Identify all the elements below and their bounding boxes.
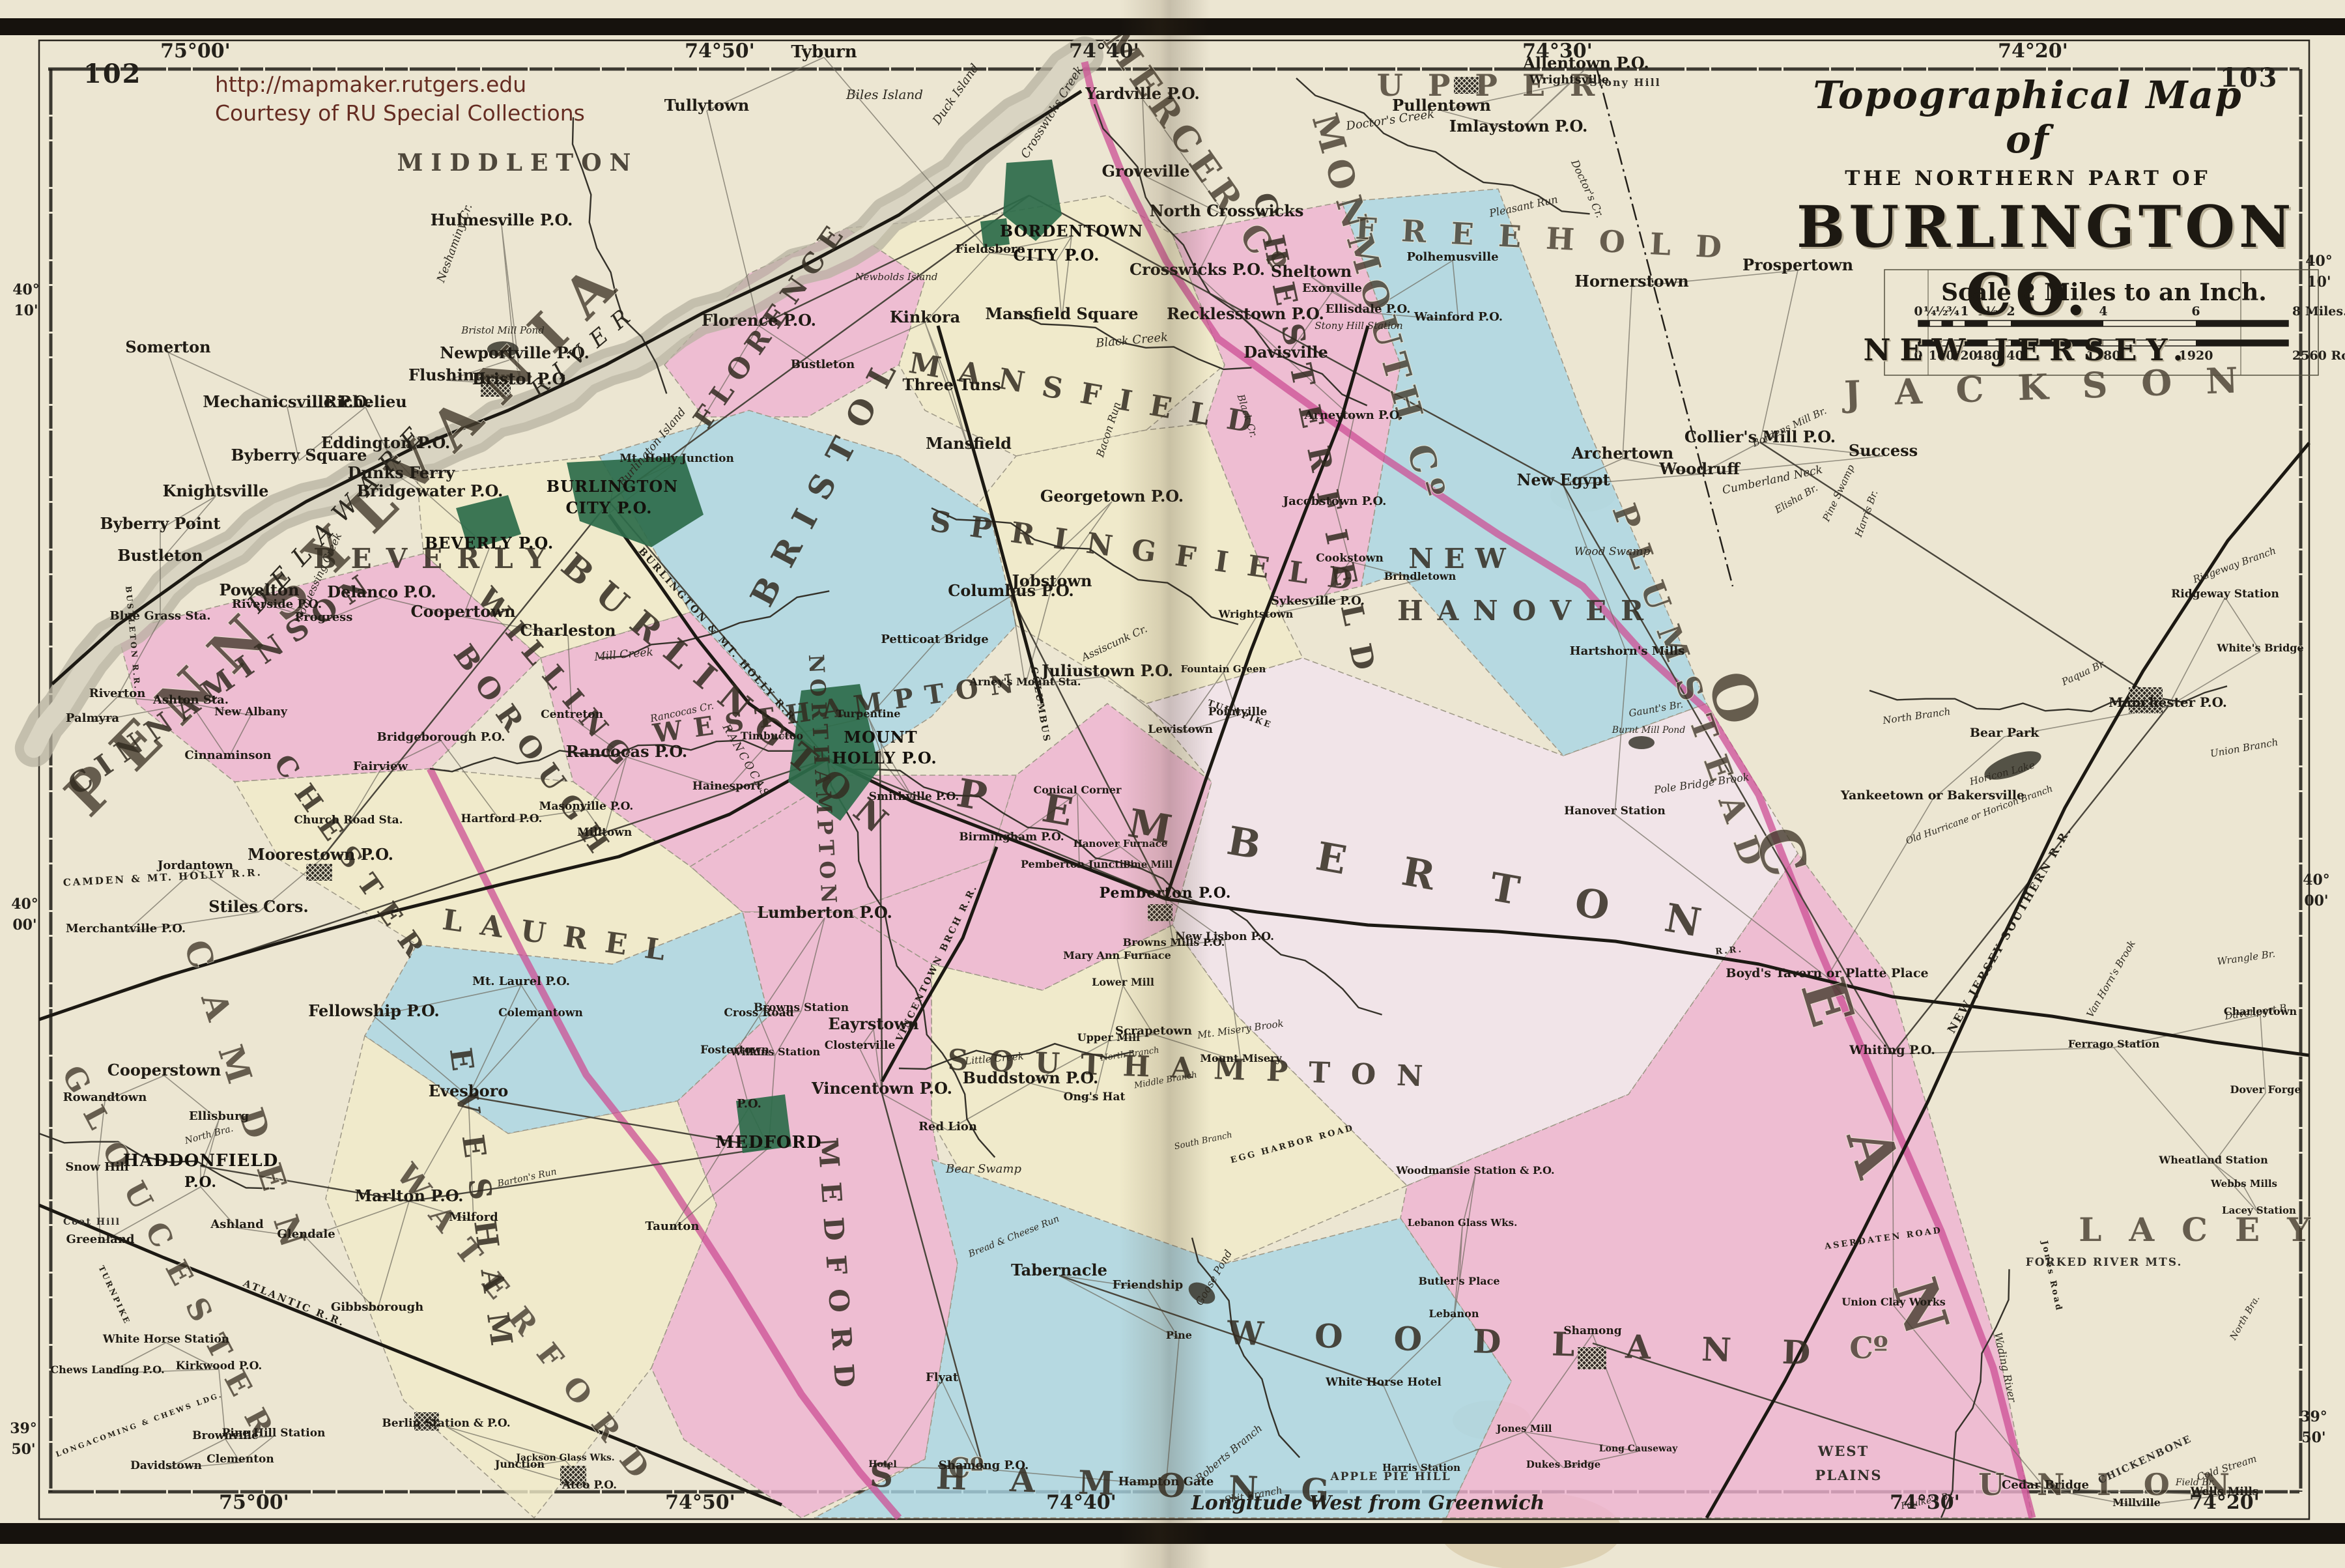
scale-label: Scale 2 Miles to an Inch. xyxy=(1915,279,2293,306)
place-label: Long Causeway xyxy=(1599,1444,1678,1454)
watermark: http://mapmaker.rutgers.edu Courtesy of … xyxy=(215,70,585,128)
place-label: Rancocas P.O. xyxy=(566,742,687,761)
place-label: Shamong xyxy=(1563,1324,1621,1337)
place-label: Ong's Hat xyxy=(1064,1090,1126,1104)
longitude-label-top: 74°30' xyxy=(1522,40,1593,63)
place-label: Stony Hill Station xyxy=(1315,320,1402,332)
place-label: Lumberton P.O. xyxy=(757,903,892,922)
place-label: BURLINGTON xyxy=(547,477,678,496)
place-label: Sykesville P.O. xyxy=(1271,594,1365,608)
place-label: Florence P.O. xyxy=(702,311,816,330)
place-label: Shamong P.O. xyxy=(939,1459,1029,1472)
longitude-label-top: 74°50' xyxy=(685,40,755,63)
place-label: Manchester P.O. xyxy=(2109,694,2227,710)
place-label: Conical Corner xyxy=(1034,784,1122,796)
place-label: Newbolds Island xyxy=(855,271,938,283)
place-label: Vincentown P.O. xyxy=(811,1079,952,1098)
place-label: Chews Landing P.O. xyxy=(50,1363,164,1376)
place-label: Milford xyxy=(449,1210,498,1224)
place-label: Taunton xyxy=(646,1219,700,1233)
place-label: Cinnaminson xyxy=(184,748,271,762)
place-label: Exonville xyxy=(1302,281,1362,295)
place-label: Hartford P.O. xyxy=(461,812,543,825)
latitude-label: 00' xyxy=(12,917,36,934)
place-label: Union Clay Works xyxy=(1841,1296,1945,1308)
place-label: Stiles Cors. xyxy=(208,897,308,916)
place-label: Kinkora xyxy=(890,307,960,326)
place-label: HADDONFIELD xyxy=(123,1151,279,1171)
latitude-label: 40° xyxy=(11,896,38,913)
place-label: Biles Island xyxy=(846,87,923,102)
watermark-line-1: http://mapmaker.rutgers.edu xyxy=(215,70,585,99)
title-block: Topographical Map of THE NORTHERN PART O… xyxy=(1797,73,2259,367)
map-sheet: PENNSYLVANIAMIDDLETONBRISTOLMERCER CºMON… xyxy=(0,0,2345,1568)
place-label: Boyd's Tavern or Platte Place xyxy=(1726,966,1928,980)
place-label: Bridgewater P.O. xyxy=(357,481,504,500)
place-label: P.O. xyxy=(184,1174,217,1191)
place-label: Church Road Sta. xyxy=(294,814,403,827)
latitude-label: 40° xyxy=(12,281,40,298)
place-label: Greenland xyxy=(66,1233,134,1246)
place-label: HANOVER xyxy=(1397,595,1658,627)
place-label: White Horse Hotel xyxy=(1325,1376,1442,1389)
place-label: Success xyxy=(1849,441,1918,460)
place-label: Cookstown xyxy=(1316,552,1384,565)
place-label: Ferrago Station xyxy=(2068,1038,2160,1050)
place-label: White Horse Station xyxy=(102,1333,229,1346)
place-label: Powelton xyxy=(220,580,300,599)
place-label: Bristol Mill Pond xyxy=(461,324,545,336)
place-label: Moorestown P.O. xyxy=(248,845,393,864)
place-label: Lebanon xyxy=(1429,1307,1479,1320)
place-label: Evesboro xyxy=(429,1081,508,1100)
place-label: White's Bridge xyxy=(2216,642,2303,654)
place-label: Eddington P.O. xyxy=(321,433,450,452)
place-label: Butler's Place xyxy=(1418,1275,1499,1287)
latitude-label: 39° xyxy=(2300,1408,2327,1425)
place-label: Bustleton xyxy=(117,546,203,565)
place-label: CITY P.O. xyxy=(566,498,653,517)
place-label: Imlaystown P.O. xyxy=(1449,117,1588,135)
place-label: Tullytown xyxy=(664,96,750,115)
place-label: Bear Swamp xyxy=(945,1162,1021,1176)
title-line-1: Topographical Map of xyxy=(1797,73,2259,162)
place-label: Hornerstown xyxy=(1574,272,1688,291)
place-label: Davidstown xyxy=(130,1459,202,1472)
place-label: Tyburn xyxy=(791,42,857,62)
place-label: Webbs Mills xyxy=(2210,1178,2277,1190)
place-label: Ridgeway Station xyxy=(2171,588,2279,601)
place-label: Tabernacle xyxy=(1011,1261,1107,1279)
place-label: Millville xyxy=(2112,1496,2161,1509)
place-label: Mt. Laurel P.O. xyxy=(472,975,570,988)
place-label: Blue Grass Sta. xyxy=(109,609,210,623)
place-label: Arneytown P.O. xyxy=(1303,408,1402,422)
place-label: Clementon xyxy=(206,1453,274,1466)
place-label: Bear Park xyxy=(1970,726,2039,740)
longitude-label-bottom: 74°20' xyxy=(2189,1491,2260,1514)
latitude-label: 40° xyxy=(2303,872,2330,889)
place-label: Coopertown xyxy=(410,602,515,621)
page-fold-gutter xyxy=(1119,0,1210,1568)
place-label: Milltown xyxy=(577,826,632,839)
place-label: Cedar Bridge xyxy=(2002,1478,2089,1492)
place-label: Dunks Ferry xyxy=(348,463,455,482)
place-label: Rowandtown xyxy=(63,1090,147,1104)
place-label: Charleytown xyxy=(2224,1005,2297,1018)
place-label: P.O. xyxy=(737,1097,761,1111)
place-label: Progress xyxy=(295,610,353,624)
place-label: Woodmansie Station & P.O. xyxy=(1395,1164,1554,1176)
page-number-left: 102 xyxy=(83,59,142,89)
place-label: Petticoat Bridge xyxy=(881,633,988,646)
place-label: Flyat xyxy=(926,1371,959,1384)
place-label: Ashland xyxy=(210,1218,264,1231)
place-label: Mt. Holly Junction xyxy=(619,452,734,465)
place-label: Delanco P.O. xyxy=(327,582,436,601)
place-label: Harris Station xyxy=(1382,1462,1460,1474)
title-line-2: THE NORTHERN PART OF xyxy=(1797,167,2259,190)
place-label: Archertown xyxy=(1571,444,1673,463)
place-label: Gibbsborough xyxy=(331,1300,423,1314)
place-label: Masonville P.O. xyxy=(539,800,634,813)
place-label: Pine Hill Station xyxy=(222,1427,326,1440)
place-label: Hulmesville P.O. xyxy=(431,210,573,229)
longitude-label-bottom: 75°00' xyxy=(219,1491,289,1514)
place-label: Hanover Station xyxy=(1564,805,1666,818)
place-label: Merchantville P.O. xyxy=(66,922,186,935)
scale-tick-label: 8 Miles. xyxy=(2292,304,2345,319)
place-label: Polhemusville xyxy=(1406,250,1498,264)
place-label: Turpentine xyxy=(836,707,901,720)
place-label: Red Lion xyxy=(918,1120,977,1133)
place-label: Dover Forge xyxy=(2230,1083,2301,1096)
place-label: Palmyra xyxy=(66,711,120,725)
place-label: WEST xyxy=(1817,1443,1869,1459)
place-label: Brindletown xyxy=(1384,570,1457,582)
place-label: MOUNT xyxy=(844,728,917,747)
place-label: Buddstown P.O. xyxy=(963,1068,1099,1087)
place-label: Yankeetown or Bakersville xyxy=(1840,788,2025,803)
place-label: Knightsville xyxy=(163,481,269,500)
place-label: Lacey Station xyxy=(2222,1205,2296,1216)
place-label: Wrightstown xyxy=(1218,608,1294,620)
place-label: Field Br. xyxy=(2175,1477,2215,1488)
place-label: Hartshorn's Mills xyxy=(1570,644,1685,658)
place-label: Sheltown xyxy=(1271,262,1352,281)
place-label: Ellisburg xyxy=(189,1109,249,1123)
place-label: Wood Swamp xyxy=(1574,545,1651,558)
place-label: Glendale xyxy=(277,1227,335,1241)
latitude-label: 39° xyxy=(10,1420,37,1437)
latitude-label: 40° xyxy=(2305,253,2333,270)
place-label: Riverside P.O. xyxy=(232,597,322,611)
place-label: Cooperstown xyxy=(107,1061,221,1079)
latitude-label: 50' xyxy=(11,1441,35,1458)
longitude-caption: Longitude West from Greenwich xyxy=(1166,1492,1570,1515)
place-label: Burnt Mill Pond xyxy=(1612,725,1686,735)
place-label: Woodruff xyxy=(1658,459,1741,478)
place-label: BEVERLY P.O. xyxy=(425,534,554,552)
place-label: Whiting P.O. xyxy=(1849,1043,1935,1057)
place-label: MEDFORD xyxy=(715,1133,821,1152)
latitude-label: 50' xyxy=(2301,1429,2325,1446)
latitude-label: 10' xyxy=(14,302,38,319)
place-label: Ellisdale P.O. xyxy=(1326,302,1411,316)
place-label: Lebanon Glass Wks. xyxy=(1408,1217,1518,1229)
place-label: Newportville P.O. xyxy=(440,343,590,362)
longitude-label-bottom: 74°50' xyxy=(665,1491,735,1514)
place-label: Berlin Station & P.O. xyxy=(382,1417,510,1430)
place-label: Davisville xyxy=(1244,343,1328,362)
place-label: Closterville xyxy=(825,1039,896,1052)
place-label: Byberry Point xyxy=(100,514,221,533)
place-label: Centreton xyxy=(541,708,603,721)
longitude-label-top: 75°00' xyxy=(160,40,231,63)
place-label: Marlton P.O. xyxy=(354,1186,463,1205)
scale-tick-label: 2560 Rods. xyxy=(2292,349,2345,363)
place-label: Richelieu xyxy=(324,392,406,411)
longitude-label-bottom: 74°30' xyxy=(1890,1491,1960,1514)
title-line-4: NEW JERSEY. xyxy=(1797,332,2259,367)
longitude-label-bottom: 74°40' xyxy=(1046,1491,1116,1514)
place-label: PLAINS xyxy=(1815,1467,1882,1483)
place-label: Three Tuns xyxy=(903,375,1001,394)
place-label: Somerton xyxy=(125,337,210,356)
latitude-label: 00' xyxy=(2304,892,2328,909)
place-label: Jones Mill xyxy=(1496,1423,1552,1434)
place-label: Mansfield Square xyxy=(985,304,1138,323)
place-label: Bustleton xyxy=(791,358,855,371)
place-label: Timbuctoo xyxy=(741,730,804,742)
place-label: Atco P.O. xyxy=(561,1479,617,1492)
place-label: HOLLY P.O. xyxy=(832,748,937,767)
place-label: Cross Road xyxy=(724,1006,793,1019)
place-label: Kirkwood P.O. xyxy=(176,1360,263,1373)
pond xyxy=(1628,736,1655,749)
place-label: New Albany xyxy=(214,706,288,719)
place-label: Stony Hill xyxy=(1589,76,1660,89)
place-label: Mount Misery xyxy=(1200,1052,1282,1064)
place-label: Fairview xyxy=(353,760,408,773)
place-label: CITY P.O. xyxy=(1014,246,1100,264)
place-label: Wheatland Station xyxy=(2158,1154,2268,1166)
place-label: Birmingham P.O. xyxy=(959,831,1064,844)
place-label: LACEY xyxy=(2079,1210,2338,1249)
place-label: New Egypt xyxy=(1516,470,1610,489)
title-line-3: BURLINGTON CO. xyxy=(1797,193,2259,328)
place-label: Wainford P.O. xyxy=(1414,310,1503,324)
place-label: Jackson Glass Wks. xyxy=(515,1453,614,1463)
place-label: Dukes Bridge xyxy=(1526,1459,1600,1470)
place-label: Jacobstown P.O. xyxy=(1282,494,1387,508)
place-label: Wilkins Station xyxy=(730,1046,821,1058)
watermark-line-2: Courtesy of RU Special Collections xyxy=(215,99,585,128)
place-label: Arney's Mount Sta. xyxy=(969,676,1081,688)
place-label: Hotel xyxy=(868,1459,896,1470)
longitude-label-top: 74°20' xyxy=(1998,40,2068,63)
place-label: MIDDLETON xyxy=(397,149,639,177)
place-label: Colemantown xyxy=(498,1006,583,1019)
latitude-label: 10' xyxy=(2307,274,2331,291)
place-label: Coat Hill xyxy=(63,1217,121,1227)
place-label: Jobstown xyxy=(1011,571,1092,590)
place-label: Bristol P.O. xyxy=(472,369,570,388)
place-label: Mansfield xyxy=(926,434,1012,453)
place-label: Fellowship P.O. xyxy=(308,1001,439,1020)
place-label: Charleston xyxy=(520,621,616,640)
place-label: Ashton Sta. xyxy=(152,693,229,707)
place-label: Bridgeborough P.O. xyxy=(377,730,505,744)
place-label: Smithville P.O. xyxy=(869,790,959,803)
village-block-moorestown-v xyxy=(306,864,332,881)
place-label: Snow Hill xyxy=(65,1160,129,1174)
